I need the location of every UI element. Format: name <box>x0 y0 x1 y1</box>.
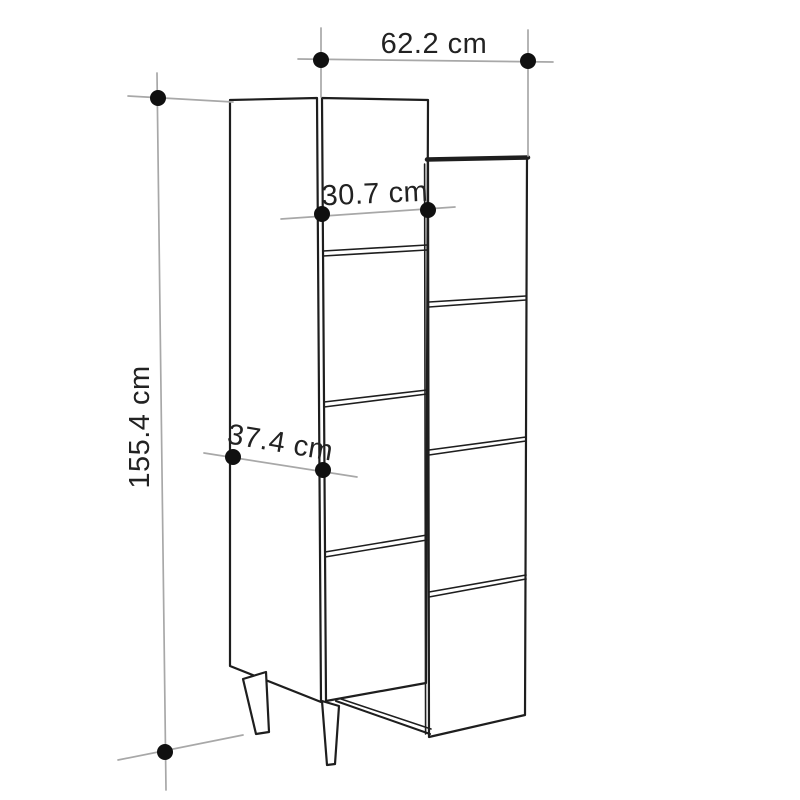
total-height-label: 155.4 cm <box>124 365 156 488</box>
cabinet-leg-front-left <box>243 672 269 734</box>
dimension-dot <box>313 52 329 68</box>
extension-line <box>128 96 233 102</box>
shelf-column <box>428 157 527 737</box>
dimension-dot <box>150 90 166 106</box>
dimension-dot <box>520 53 536 69</box>
shelf-column-left-edge <box>425 164 426 734</box>
dimension-line <box>157 73 166 790</box>
diagram-canvas: 62.2 cm 155.4 cm 30.7 cm 37.4 cm <box>0 0 800 800</box>
dimension-total-height: 155.4 cm <box>118 73 243 790</box>
front-width-label: 30.7 cm <box>321 176 429 213</box>
dimension-dot <box>157 744 173 760</box>
total-width-label: 62.2 cm <box>381 28 488 60</box>
extension-line <box>118 735 243 760</box>
cabinet-leg-front-right <box>322 701 339 765</box>
base-edge-line <box>336 701 430 734</box>
cabinet-side-panel <box>230 98 321 702</box>
base-edge-line <box>341 699 431 729</box>
shelf-column-top-edge <box>427 158 528 160</box>
furniture-dimension-diagram: 62.2 cm 155.4 cm 30.7 cm 37.4 cm <box>0 0 800 800</box>
